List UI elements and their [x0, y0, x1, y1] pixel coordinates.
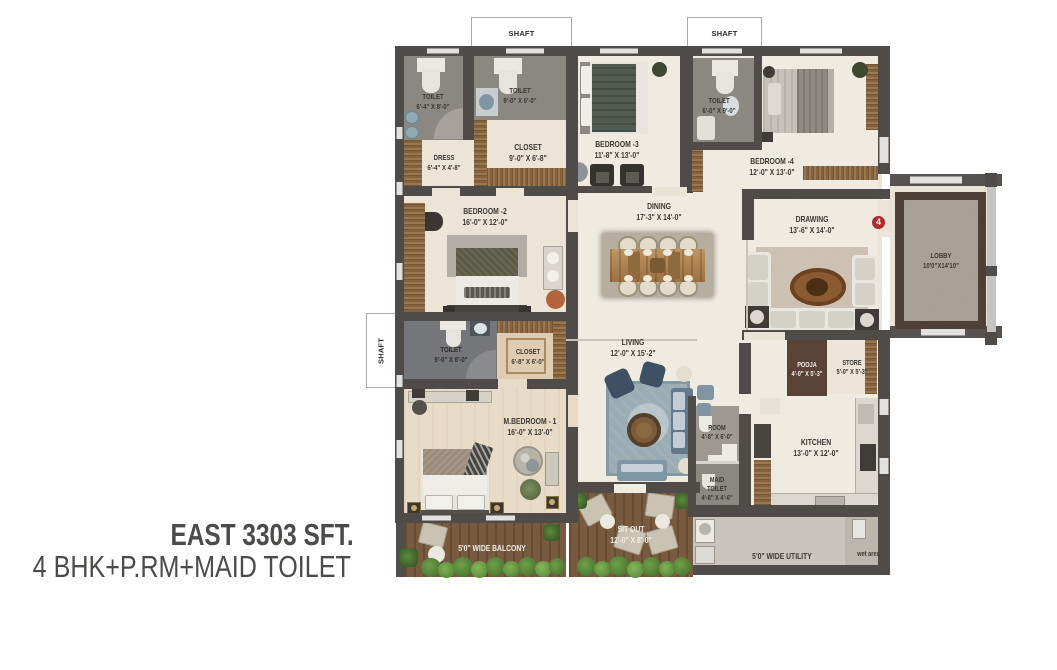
svg-text:SHAFT: SHAFT — [377, 338, 386, 364]
